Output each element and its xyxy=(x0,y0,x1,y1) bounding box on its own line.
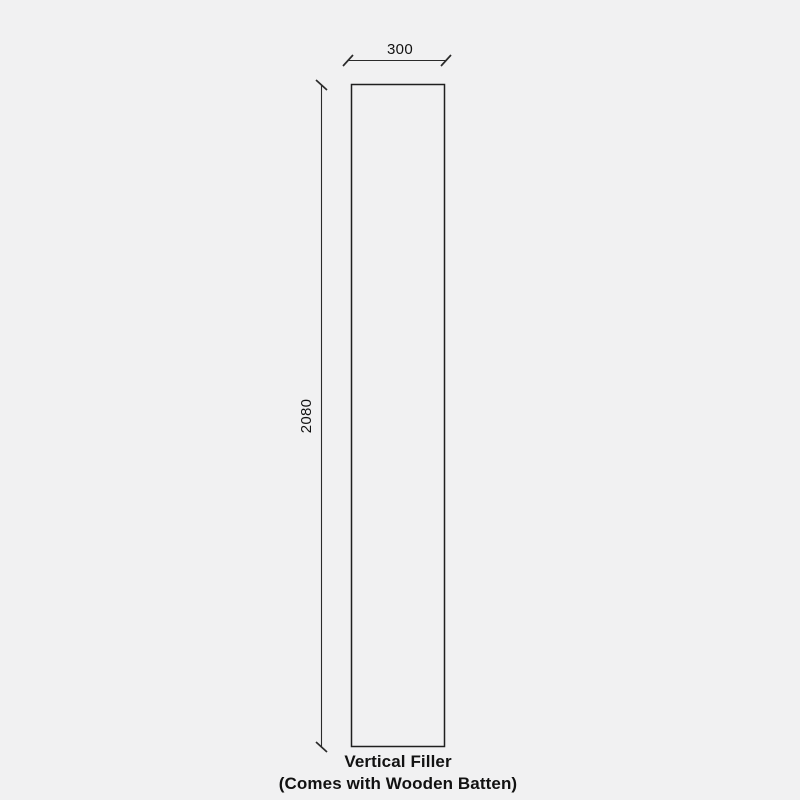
width-dimension: 300 xyxy=(343,41,451,66)
height-dimension: 2080 xyxy=(298,80,327,752)
technical-drawing: 300 2080 xyxy=(0,0,800,800)
caption: Vertical Filler (Comes with Wooden Batte… xyxy=(198,751,598,795)
caption-title: Vertical Filler xyxy=(198,751,598,773)
width-dimension-label: 300 xyxy=(387,41,413,58)
drawing-canvas: 300 2080 Vertical Filler (Comes with Woo… xyxy=(0,0,800,800)
caption-subtitle: (Comes with Wooden Batten) xyxy=(198,773,598,795)
height-dimension-label: 2080 xyxy=(298,399,315,434)
filler-panel-outline xyxy=(352,85,445,747)
